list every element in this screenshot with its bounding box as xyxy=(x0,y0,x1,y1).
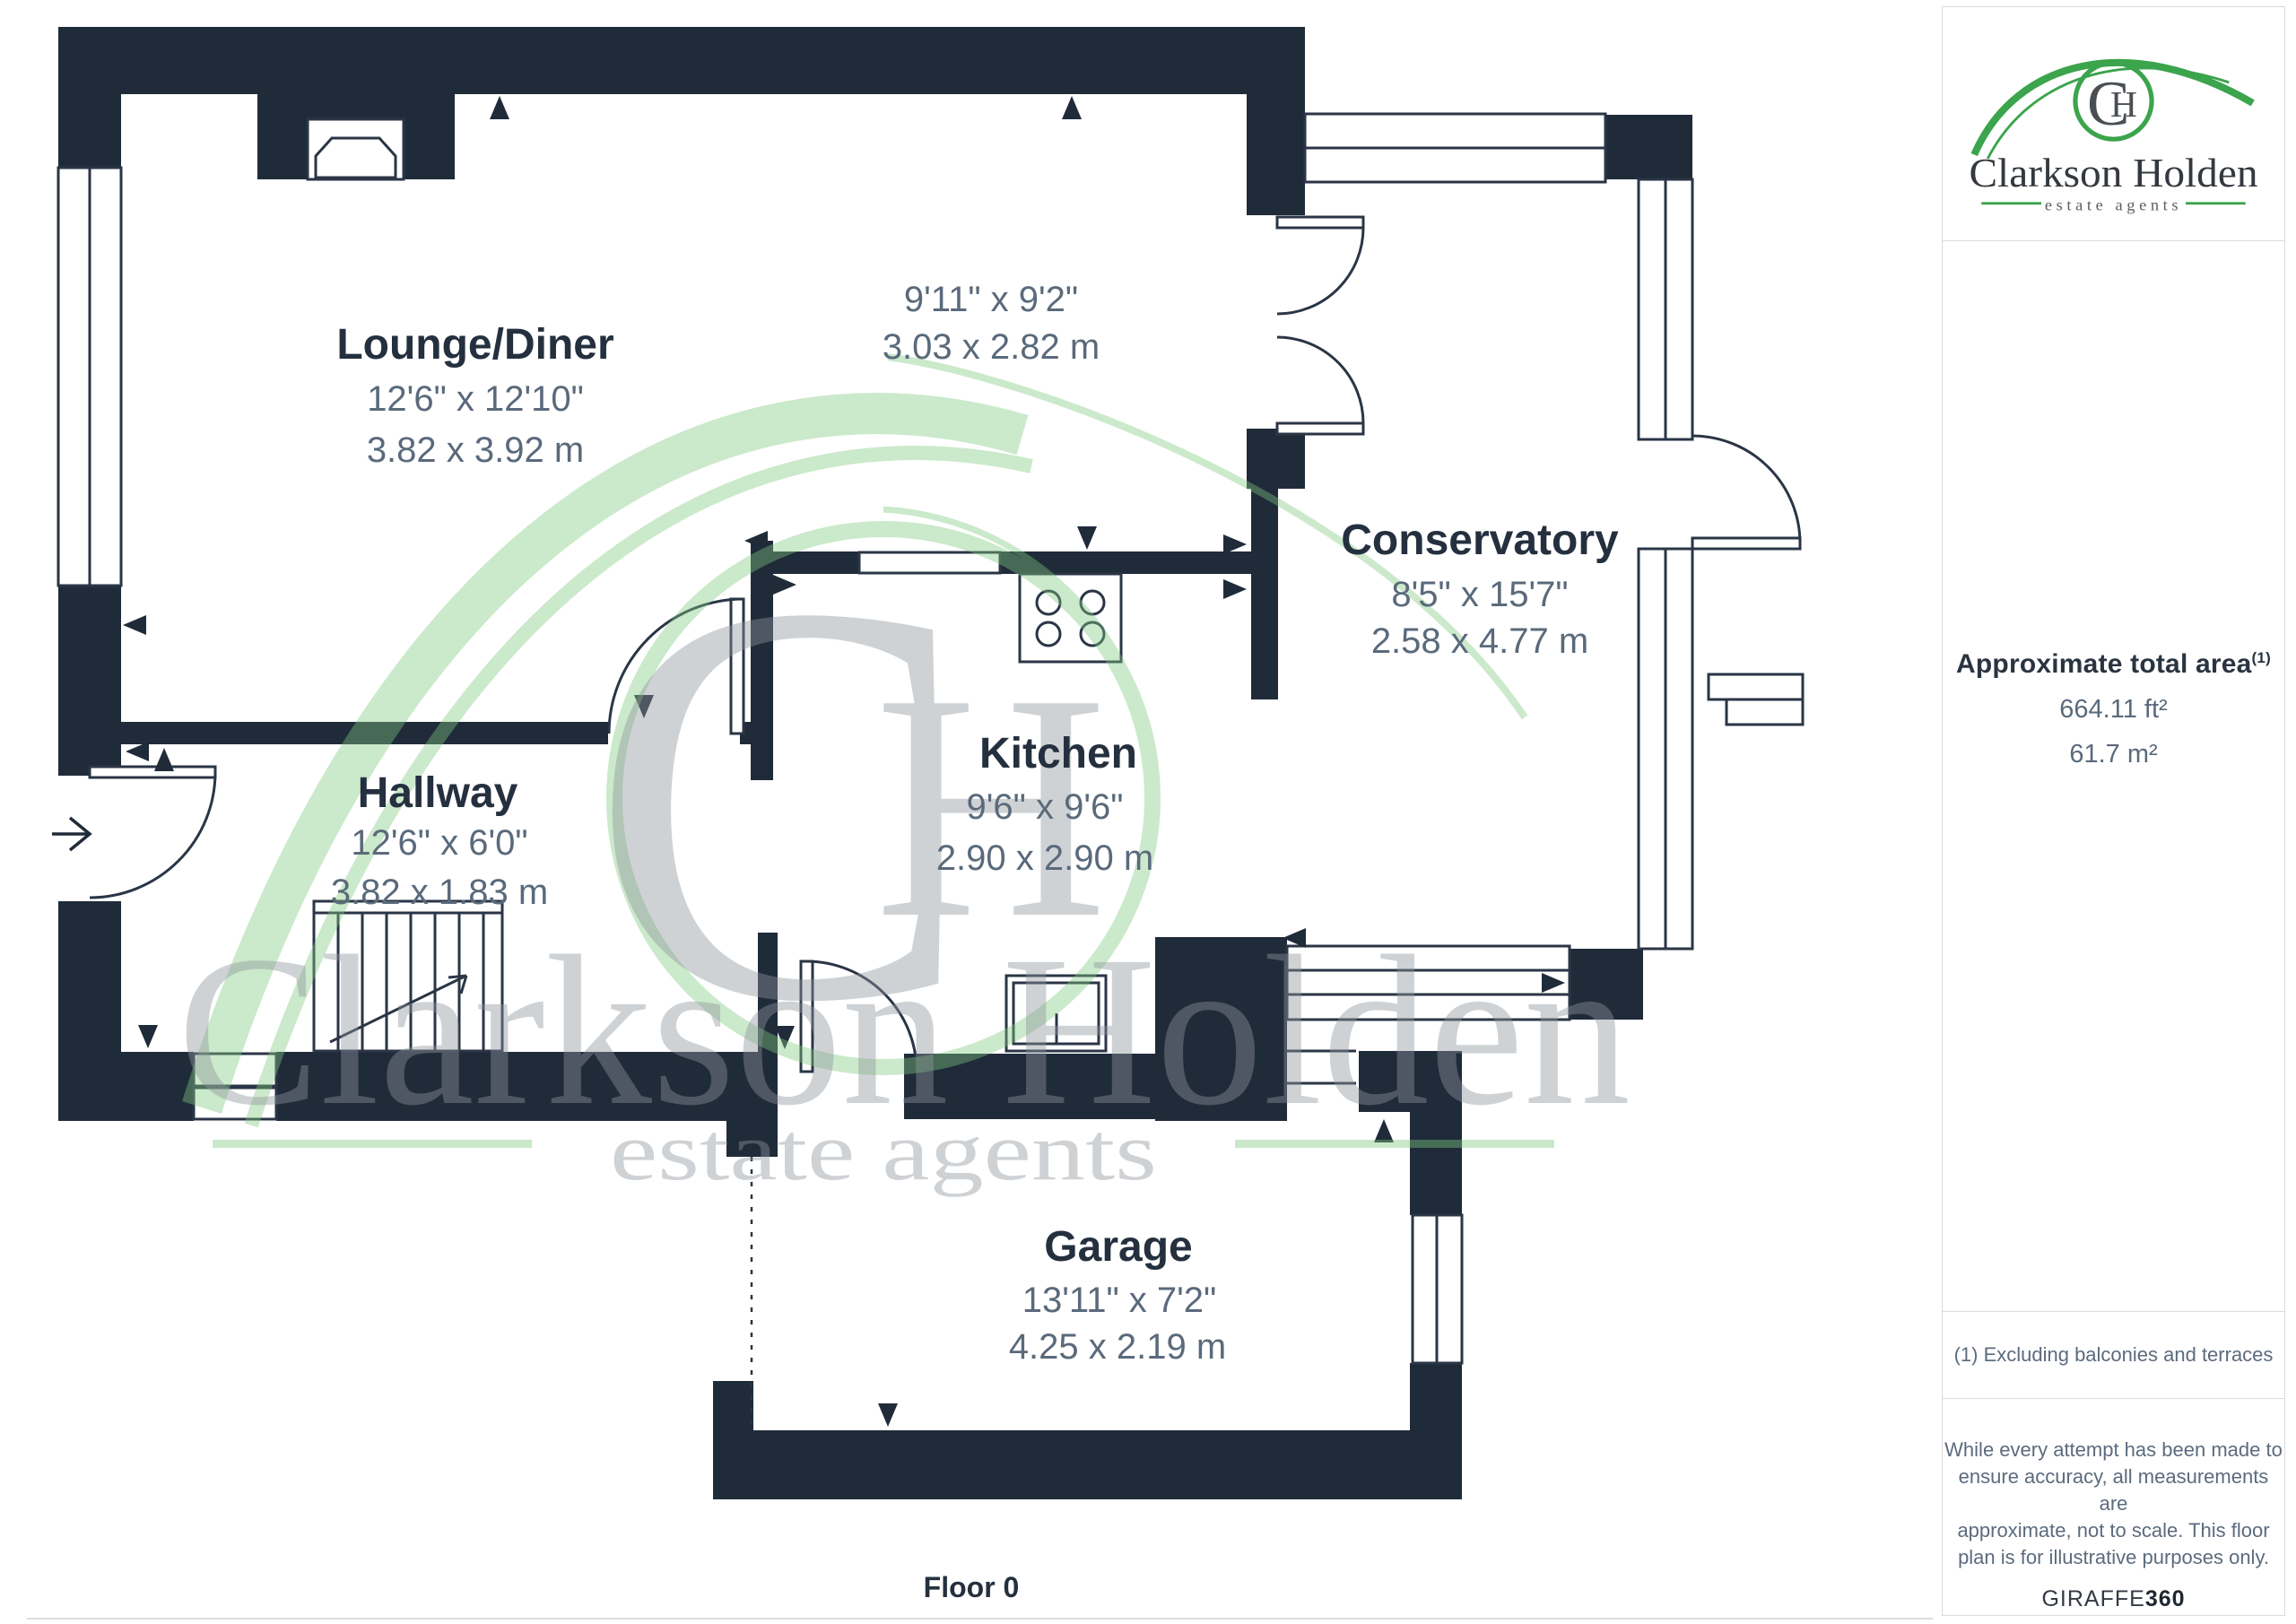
room-name-kitchen: Kitchen xyxy=(979,730,1137,777)
room-name-lounge-diner: Lounge/Diner xyxy=(336,321,613,369)
room-dim-metric: 3.82 x 1.83 m xyxy=(331,873,548,912)
footnote: (1) Excluding balconies and terraces xyxy=(1943,1311,2284,1398)
room-name-conservatory: Conservatory xyxy=(1341,517,1619,564)
info-sidebar: C H Clarkson Holden estate agents Approx… xyxy=(1942,6,2285,1616)
brand-logo-icon: C H Clarkson Holden estate agents xyxy=(1959,29,2268,220)
disclaimer-line: While every attempt has been made to xyxy=(1943,1437,2284,1463)
entrance-arrow-icon xyxy=(52,818,90,850)
front-door xyxy=(90,767,215,777)
room-dim-metric: 3.82 x 3.92 m xyxy=(367,430,584,470)
disclaimer-section: While every attempt has been made to ens… xyxy=(1943,1398,2284,1615)
room-dim-imperial: 9'11" x 9'2" xyxy=(904,280,1078,319)
conservatory-door-bottom xyxy=(1277,423,1363,434)
room-dim-metric: 3.03 x 2.82 m xyxy=(883,327,1100,367)
floor-label: Floor 0 xyxy=(924,1571,1020,1603)
brand-tagline: estate agents xyxy=(2045,195,2182,213)
room-dim-imperial: 12'6" x 6'0" xyxy=(351,823,527,863)
bottom-divider xyxy=(27,1618,1933,1620)
room-dim-imperial: 9'6" x 9'6" xyxy=(967,787,1124,827)
room-dim-metric: 2.58 x 4.77 m xyxy=(1371,621,1588,661)
room-dim-imperial: 13'11" x 7'2" xyxy=(1022,1281,1216,1320)
conservatory-external-door xyxy=(1692,538,1800,549)
footnote-ref: (1) xyxy=(2252,649,2271,666)
room-dim-metric: 4.25 x 2.19 m xyxy=(1009,1327,1226,1367)
room-dim-imperial: 8'5" x 15'7" xyxy=(1391,575,1568,614)
disclaimer-line: ensure accuracy, all measurements are xyxy=(1943,1463,2284,1517)
room-dim-metric: 2.90 x 2.90 m xyxy=(936,838,1153,878)
room-name-garage: Garage xyxy=(1044,1223,1192,1271)
giraffe360-credit: GIRAFFE360 xyxy=(1943,1585,2284,1612)
watermark-tagline: estate agents xyxy=(610,1106,1157,1197)
brand-monogram-h: H xyxy=(2110,83,2137,124)
brand-name: Clarkson Holden xyxy=(1970,150,2258,195)
floorplan-page: C H Clarkson Holden estate agents Lounge… xyxy=(0,0,2296,1624)
brand-logo: C H Clarkson Holden estate agents xyxy=(1943,7,2284,240)
total-area-imperial: 664.11 ft² xyxy=(1943,695,2284,725)
total-area-title: Approximate total area(1) xyxy=(1943,649,2284,680)
room-dim-imperial: 12'6" x 12'10" xyxy=(367,379,584,419)
disclaimer-line: approximate, not to scale. This floor xyxy=(1943,1517,2284,1544)
total-area-section: Approximate total area(1) 664.11 ft² 61.… xyxy=(1943,240,2284,1311)
total-area-metric: 61.7 m² xyxy=(1943,740,2284,769)
conservatory-door-top xyxy=(1277,217,1363,228)
room-name-hallway: Hallway xyxy=(358,769,518,817)
disclaimer-line: plan is for illustrative purposes only. xyxy=(1943,1544,2284,1571)
